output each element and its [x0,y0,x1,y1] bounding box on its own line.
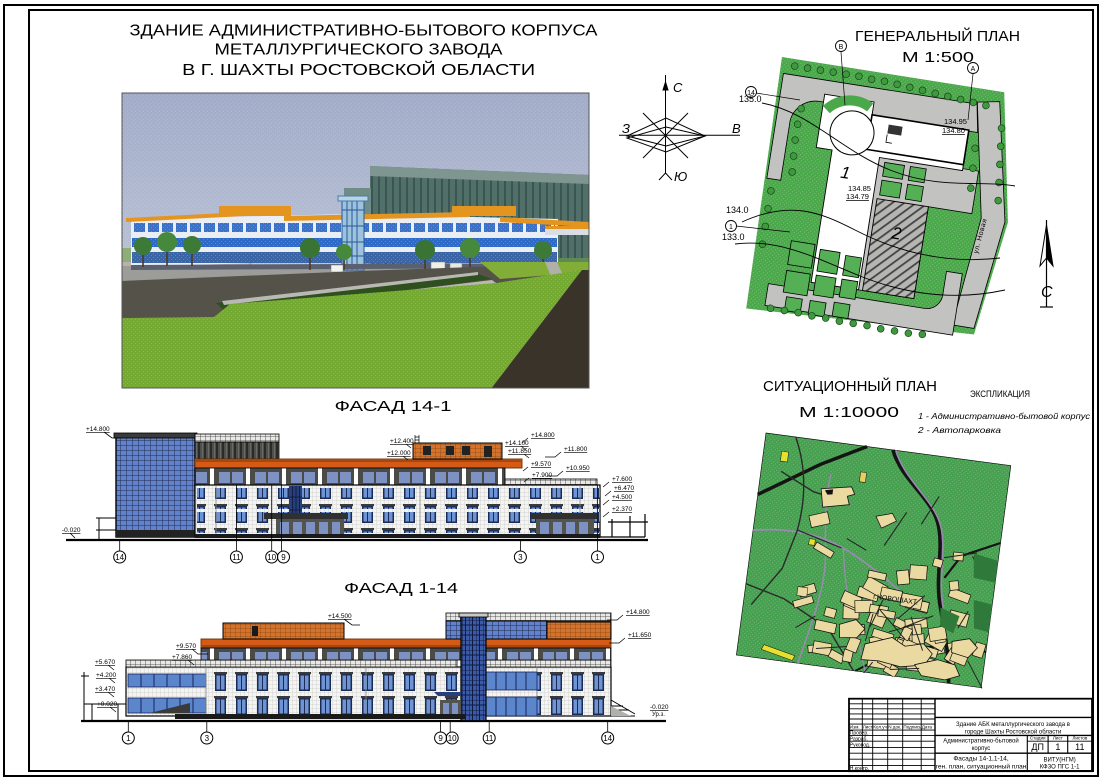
svg-text:9: 9 [438,734,443,743]
svg-text:ВИТУ(НГМ): ВИТУ(НГМ) [1043,758,1075,764]
svg-text:1 - Административно-бытовой ко: 1 - Административно-бытовой корпус [918,411,1091,421]
svg-text:КФЗО ПГС 1-1: КФЗО ПГС 1-1 [1040,765,1080,771]
svg-text:В Г. ШАХТЫ РОСТОВСКОЙ ОБЛАСТИ: В Г. ШАХТЫ РОСТОВСКОЙ ОБЛАСТИ [182,60,535,79]
svg-text:+6.470: +6.470 [614,485,634,492]
svg-text:134.79: 134.79 [846,192,869,201]
svg-text:С: С [673,80,683,95]
svg-text:9: 9 [281,553,286,562]
svg-text:+14.100: +14.100 [505,440,529,447]
svg-text:+9.570: +9.570 [176,643,196,650]
svg-text:1: 1 [595,553,600,562]
svg-text:З: З [622,121,630,136]
svg-text:Кол.уч: Кол.уч [873,725,887,730]
svg-text:+7.900: +7.900 [532,472,552,479]
svg-text:+11.650: +11.650 [628,632,652,639]
svg-text:+14.800: +14.800 [626,609,650,616]
svg-text:2 - Автопарковка: 2 - Автопарковка [917,425,1001,435]
svg-text:+10.950: +10.950 [566,465,590,472]
svg-text:Ур.з.: Ур.з. [652,712,665,718]
svg-text:134.0: 134.0 [726,205,749,215]
svg-text:Н.контр.: Н.контр. [850,766,869,772]
svg-text:+5.670: +5.670 [95,659,115,666]
svg-text:-0.020: -0.020 [650,704,669,711]
svg-text:11: 11 [232,553,241,562]
svg-text:СИТУАЦИОННЫЙ ПЛАН: СИТУАЦИОННЫЙ ПЛАН [763,377,937,395]
svg-text:1: 1 [126,734,131,743]
svg-text:+14.800: +14.800 [531,432,555,439]
svg-text:ФАСАД 1-14: ФАСАД 1-14 [344,580,458,597]
svg-text:Листов: Листов [1072,736,1087,741]
svg-text:10: 10 [267,553,276,562]
svg-text:Руковод.: Руковод. [850,743,870,749]
svg-text:Дата: Дата [922,725,933,730]
svg-text:корпус: корпус [972,746,991,752]
svg-text:Подпись: Подпись [903,725,922,730]
svg-text:ЗДАНИЕ АДМИНИСТРАТИВНО-БЫТОВОГ: ЗДАНИЕ АДМИНИСТРАТИВНО-БЫТОВОГО КОРПУСА [130,23,598,40]
svg-text:+7.860: +7.860 [172,654,192,661]
svg-text:М 1:500: М 1:500 [902,49,974,66]
svg-text:М 1:10000: М 1:10000 [799,404,899,421]
svg-text:Разраб.: Разраб. [850,736,868,742]
svg-text:+7.600: +7.600 [612,476,632,483]
svg-text:10: 10 [448,734,457,743]
svg-text:135.0: 135.0 [739,94,762,104]
svg-text:Лист: Лист [1053,736,1064,741]
svg-text:городе Шахты Ростовской област: городе Шахты Ростовской области [965,729,1062,736]
svg-text:134.80: 134.80 [942,126,965,135]
svg-text:А: А [971,66,976,73]
svg-text:+14.800: +14.800 [86,426,110,433]
svg-text:N док.: N док. [888,725,901,730]
svg-text:133.0: 133.0 [722,232,745,242]
svg-text:ДП: ДП [1031,742,1044,752]
svg-text:+4.200: +4.200 [96,672,116,679]
svg-text:14: 14 [603,734,612,743]
svg-text:134.95: 134.95 [944,117,967,126]
svg-text:Лист: Лист [863,725,874,730]
svg-text:Фасады 14-1,1-14,: Фасады 14-1,1-14, [953,756,1009,763]
svg-text:МЕТАЛЛУРГИЧЕСКОГО ЗАВОДА: МЕТАЛЛУРГИЧЕСКОГО ЗАВОДА [215,42,503,59]
svg-text:+11.800: +11.800 [564,446,588,453]
svg-text:Административно-бытовой: Административно-бытовой [943,738,1018,745]
svg-text:+2.370: +2.370 [612,506,632,513]
svg-text:3: 3 [518,553,523,562]
svg-text:+9.570: +9.570 [531,461,551,468]
svg-text:ген. план, ситуационный план: ген. план, ситуационный план [936,763,1027,771]
svg-text:3: 3 [205,734,210,743]
svg-text:Ю: Ю [674,169,687,184]
svg-text:+3.470: +3.470 [95,686,115,693]
svg-text:Изм.: Изм. [850,725,860,730]
svg-text:C: C [1041,284,1053,301]
svg-text:+14.500: +14.500 [328,613,352,620]
svg-text:1: 1 [1055,742,1060,752]
svg-text:+12.400: +12.400 [390,438,414,445]
svg-text:+0.020: +0.020 [97,701,117,708]
svg-text:1: 1 [729,224,733,231]
svg-text:+11.850: +11.850 [508,448,532,455]
svg-text:-0.020: -0.020 [62,527,81,534]
svg-text:ГЕНЕРАЛЬНЫЙ ПЛАН: ГЕНЕРАЛЬНЫЙ ПЛАН [855,27,1020,45]
svg-text:ЭКСПЛИКАЦИЯ: ЭКСПЛИКАЦИЯ [970,389,1030,399]
svg-text:В: В [732,121,741,136]
svg-text:14: 14 [115,553,124,562]
svg-text:В: В [839,44,844,51]
svg-text:+4.500: +4.500 [612,494,632,501]
svg-text:+12.000: +12.000 [387,450,411,457]
svg-text:11: 11 [1075,742,1084,752]
svg-text:11: 11 [485,734,494,743]
svg-text:Стадия: Стадия [1030,736,1046,741]
svg-text:Здание АБК металлургического з: Здание АБК металлургического завода в [956,722,1070,728]
svg-text:ФАСАД 14-1: ФАСАД 14-1 [335,398,452,415]
